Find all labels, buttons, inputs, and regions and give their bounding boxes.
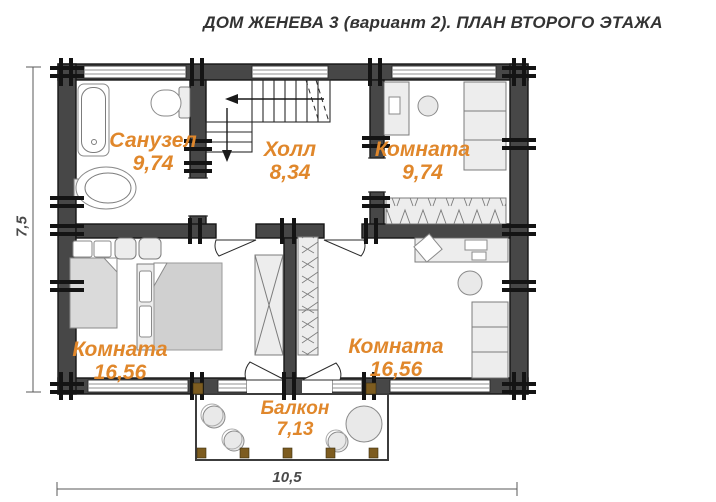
floor-plan-page: ДОМ ЖЕНЕВА 3 (вариант 2). ПЛАН ВТОРОГО Э… [0,0,716,502]
toilet [151,87,190,118]
door-bedroom-right [324,240,365,256]
room-name: Балкон [261,398,330,419]
room-area: 7,13 [235,419,355,440]
room-label-bathroom: Санузел 9,74 [93,129,213,175]
room-name: Комната [72,338,167,361]
room-name: Холл [264,138,316,161]
balcony-door-right-opening [302,379,332,393]
room-label-room-top-right: Комната 9,74 [355,138,490,184]
room-label-room-bottom-right: Комната 16,56 [321,335,471,381]
window-top-bathroom [84,66,186,78]
room-area: 16,56 [321,358,471,381]
bathroom-door-opening [188,178,208,216]
window-top-stairs [252,66,328,78]
window-bottom-left-2 [218,380,247,392]
wardrobe-zigzag [298,237,318,355]
balcony-wall-post [193,383,203,394]
dimension-width-label: 10,5 [247,469,327,486]
chair-top-right [418,96,438,116]
room-label-balcony: Балкон 7,13 [235,398,355,440]
room-name: Санузел [109,129,196,152]
desk-top-right [384,82,409,135]
dimension-height-label: 7,5 [14,205,31,249]
door-bedroom-left [215,240,256,256]
balcony-wall-post [366,383,376,394]
room-area: 9,74 [93,152,213,175]
room-label-hall: Холл 8,34 [240,138,340,184]
closet-hatched [386,198,506,224]
floor-plan-drawing [0,0,716,502]
single-bed [70,258,117,328]
room-area: 16,56 [45,361,195,384]
shelf-bottom-right [472,302,508,378]
cushion [115,238,136,259]
pillow [73,241,92,257]
stair-break-line [306,80,319,122]
cushion [139,238,161,259]
room-label-room-bottom-left: Комната 16,56 [45,338,195,384]
pillow [94,241,111,257]
room-name: Комната [375,138,470,161]
room-area: 8,34 [240,161,340,184]
door-balcony-left [245,362,285,380]
balcony-door-left-opening [247,379,285,393]
wardrobe-crossed [255,255,283,355]
window-bottom-right-2 [390,380,490,392]
window-bottom-right-1 [332,380,362,392]
desk-bottom-right [414,234,508,262]
chair-bottom-right [458,271,482,295]
double-bed [137,263,222,350]
room-area: 9,74 [355,161,490,184]
room-name: Комната [348,335,443,358]
window-top-right-room [392,66,496,78]
